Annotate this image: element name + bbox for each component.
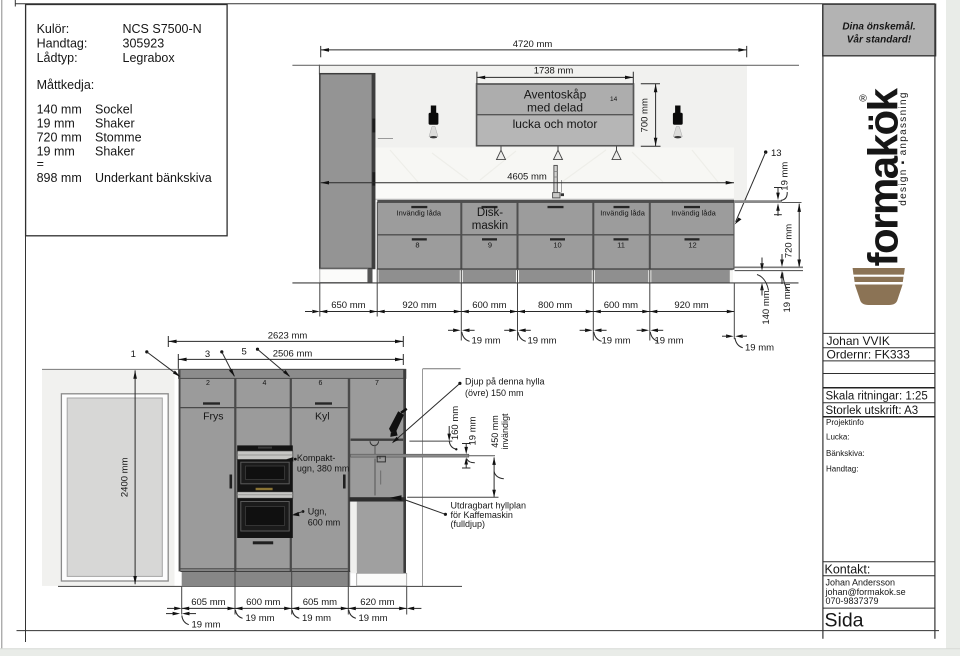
svg-text:Lucka:: Lucka: <box>826 433 850 442</box>
svg-text:Aventoskåp: Aventoskåp <box>524 88 587 102</box>
svg-text:13: 13 <box>771 148 782 159</box>
svg-text:ugn, 380 mm: ugn, 380 mm <box>297 463 350 473</box>
svg-text:5: 5 <box>242 346 247 357</box>
svg-text:Måttkedja:: Måttkedja: <box>37 78 95 92</box>
svg-text:=: = <box>37 157 44 171</box>
svg-text:4605 mm: 4605 mm <box>507 171 547 182</box>
svg-text:9: 9 <box>488 241 492 250</box>
svg-text:140 mm: 140 mm <box>37 103 82 117</box>
svg-text:Sockel: Sockel <box>95 103 133 117</box>
svg-text:650 mm: 650 mm <box>331 300 365 311</box>
svg-text:design ▪ anpassning: design ▪ anpassning <box>898 91 909 205</box>
svg-text:898 mm: 898 mm <box>37 171 82 185</box>
svg-text:450 mm: 450 mm <box>490 415 500 448</box>
svg-text:19 mm: 19 mm <box>359 613 388 624</box>
svg-text:1738 mm: 1738 mm <box>534 66 574 77</box>
svg-text:7: 7 <box>375 380 379 387</box>
svg-text:Kyl: Kyl <box>315 411 330 423</box>
svg-text:14: 14 <box>610 96 618 103</box>
svg-text:19 mm: 19 mm <box>779 162 790 191</box>
svg-text:2506 mm: 2506 mm <box>273 349 313 360</box>
svg-text:070-9837379: 070-9837379 <box>826 596 879 606</box>
svg-text:605 mm: 605 mm <box>303 597 337 608</box>
svg-text:Johan VVIK: Johan VVIK <box>827 334 890 348</box>
svg-text:Dina önskemål.: Dina önskemål. <box>842 21 915 33</box>
svg-text:Lådtyp:: Lådtyp: <box>37 51 78 65</box>
svg-text:4: 4 <box>262 380 266 387</box>
svg-text:lucka och motor: lucka och motor <box>513 117 598 131</box>
svg-text:NCS S7500-N: NCS S7500-N <box>123 22 202 36</box>
svg-text:19 mm: 19 mm <box>528 336 557 347</box>
svg-text:19 mm: 19 mm <box>745 343 774 354</box>
svg-text:Kompakt-: Kompakt- <box>297 453 336 463</box>
svg-text:2: 2 <box>206 380 210 387</box>
svg-text:920 mm: 920 mm <box>402 300 436 311</box>
svg-text:Kontakt:: Kontakt: <box>825 563 871 577</box>
svg-text:305923: 305923 <box>123 37 165 51</box>
svg-text:Underkant bänkskiva: Underkant bänkskiva <box>95 171 212 185</box>
svg-text:Shaker: Shaker <box>95 145 135 159</box>
svg-text:19 mm: 19 mm <box>782 283 793 312</box>
svg-text:19 mm: 19 mm <box>246 613 275 624</box>
svg-text:Vår standard!: Vår standard! <box>847 33 912 45</box>
svg-text:600 mm: 600 mm <box>246 597 280 608</box>
svg-text:600 mm: 600 mm <box>308 517 341 527</box>
svg-text:Invändig låda: Invändig låda <box>600 209 645 218</box>
svg-text:160 mm: 160 mm <box>450 406 461 440</box>
svg-text:720 mm: 720 mm <box>783 224 794 258</box>
svg-text:800 mm: 800 mm <box>538 300 572 311</box>
svg-text:19 mm: 19 mm <box>467 416 478 445</box>
svg-text:4720 mm: 4720 mm <box>513 39 553 50</box>
svg-text:Disk-: Disk- <box>477 207 503 219</box>
svg-text:maskin: maskin <box>472 220 508 232</box>
svg-text:Projektinfo: Projektinfo <box>826 418 864 427</box>
svg-text:8: 8 <box>415 241 419 250</box>
svg-text:Bänkskiva:: Bänkskiva: <box>826 449 865 458</box>
svg-text:720 mm: 720 mm <box>37 131 82 145</box>
svg-text:Shaker: Shaker <box>95 117 135 131</box>
svg-text:Legrabox: Legrabox <box>123 51 176 65</box>
svg-text:Frys: Frys <box>203 411 223 423</box>
svg-text:Ordernr: FK333: Ordernr: FK333 <box>827 347 911 361</box>
svg-text:Invändig låda: Invändig låda <box>671 209 716 218</box>
svg-text:Ugn,: Ugn, <box>308 506 327 516</box>
svg-text:6: 6 <box>318 380 322 387</box>
svg-text:700 mm: 700 mm <box>640 98 651 132</box>
svg-text:11: 11 <box>617 241 625 250</box>
svg-text:1: 1 <box>131 349 136 360</box>
svg-text:2623 mm: 2623 mm <box>268 331 308 342</box>
svg-text:invändigt: invändigt <box>500 413 510 450</box>
svg-text:600 mm: 600 mm <box>472 300 506 311</box>
svg-text:620 mm: 620 mm <box>360 597 394 608</box>
svg-text:19 mm: 19 mm <box>302 613 331 624</box>
svg-text:2400 mm: 2400 mm <box>120 457 131 497</box>
svg-text:Storlek utskrift: A3: Storlek utskrift: A3 <box>826 405 919 417</box>
svg-text:Kulör:: Kulör: <box>37 22 70 36</box>
svg-text:12: 12 <box>688 241 696 250</box>
svg-text:19 mm: 19 mm <box>472 336 501 347</box>
svg-text:920 mm: 920 mm <box>674 300 708 311</box>
svg-text:19 mm: 19 mm <box>602 336 631 347</box>
svg-text:Stomme: Stomme <box>95 131 142 145</box>
svg-text:19 mm: 19 mm <box>192 619 221 630</box>
svg-text:Skala ritningar: 1:25: Skala ritningar: 1:25 <box>826 391 928 403</box>
svg-text:140 mm: 140 mm <box>761 290 772 324</box>
svg-text:Johan Andersson: Johan Andersson <box>826 577 896 587</box>
svg-text:3: 3 <box>205 349 210 360</box>
svg-text:Djup på denna hylla: Djup på denna hylla <box>465 376 545 386</box>
svg-text:10: 10 <box>553 241 561 250</box>
svg-text:Sida: Sida <box>825 610 864 632</box>
svg-text:600 mm: 600 mm <box>604 300 638 311</box>
svg-text:(fulldjup): (fulldjup) <box>451 519 486 529</box>
svg-text:605 mm: 605 mm <box>191 597 225 608</box>
svg-text:®: ® <box>859 93 867 105</box>
svg-text:Handtag:: Handtag: <box>37 37 88 51</box>
svg-text:19 mm: 19 mm <box>655 336 684 347</box>
svg-text:Handtag:: Handtag: <box>826 465 858 474</box>
svg-text:19 mm: 19 mm <box>37 117 75 131</box>
svg-text:Invändig låda: Invändig låda <box>396 209 441 218</box>
svg-text:(övre) 150 mm: (övre) 150 mm <box>465 388 524 398</box>
svg-text:med delad: med delad <box>527 101 583 115</box>
